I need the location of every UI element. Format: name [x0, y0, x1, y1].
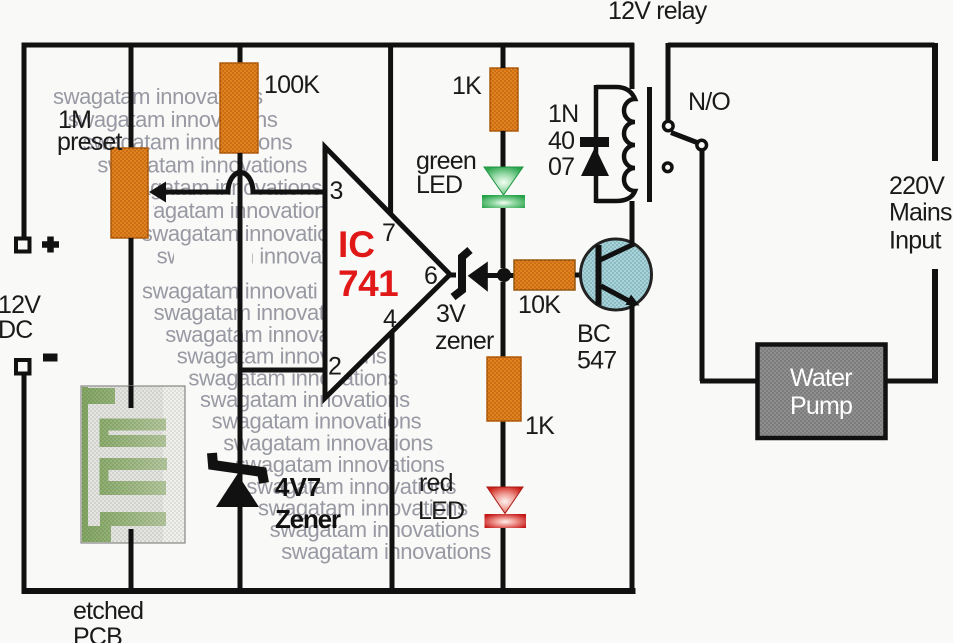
svg-text:4: 4 — [383, 305, 397, 333]
svg-text:etched: etched — [73, 597, 143, 625]
svg-text:12V: 12V — [0, 291, 41, 319]
svg-text:swagatam innovations: swagatam innovations — [142, 221, 352, 246]
svg-text:swagatam innovations: swagatam innovations — [281, 539, 491, 564]
svg-text:Water: Water — [790, 364, 852, 392]
svg-text:PCB: PCB — [73, 623, 122, 643]
svg-text:zener: zener — [435, 327, 494, 355]
svg-text:07: 07 — [548, 153, 574, 181]
svg-text:BC: BC — [577, 320, 611, 348]
svg-text:Input: Input — [889, 227, 941, 255]
svg-text:547: 547 — [577, 347, 616, 375]
svg-text:1K: 1K — [452, 72, 482, 100]
svg-text:Zener: Zener — [275, 504, 341, 534]
svg-text:1N: 1N — [548, 100, 578, 128]
svg-text:7: 7 — [382, 219, 395, 247]
svg-text:N/O: N/O — [688, 88, 730, 116]
svg-text:12V relay: 12V relay — [608, 0, 708, 25]
svg-text:DC: DC — [0, 316, 33, 344]
svg-text:220V: 220V — [889, 172, 945, 200]
svg-text:IC: IC — [338, 224, 375, 265]
svg-text:40: 40 — [548, 127, 574, 155]
svg-text:LED: LED — [416, 171, 462, 199]
svg-text:red: red — [419, 469, 453, 497]
svg-text:100K: 100K — [264, 71, 320, 99]
svg-text:LED: LED — [418, 497, 464, 525]
svg-text:6: 6 — [424, 262, 437, 290]
svg-text:3V: 3V — [436, 300, 466, 328]
svg-text:1K: 1K — [525, 412, 555, 440]
svg-text:Pump: Pump — [790, 392, 852, 420]
svg-text:2: 2 — [328, 353, 341, 381]
svg-text:preset: preset — [57, 128, 123, 156]
svg-text:4V7: 4V7 — [275, 472, 321, 502]
svg-text:10K: 10K — [518, 291, 561, 319]
svg-text:Mains: Mains — [889, 199, 952, 227]
svg-text:3: 3 — [330, 177, 343, 205]
svg-text:swagatam innovations: swagatam innovations — [127, 198, 337, 223]
svg-text:741: 741 — [338, 263, 398, 304]
